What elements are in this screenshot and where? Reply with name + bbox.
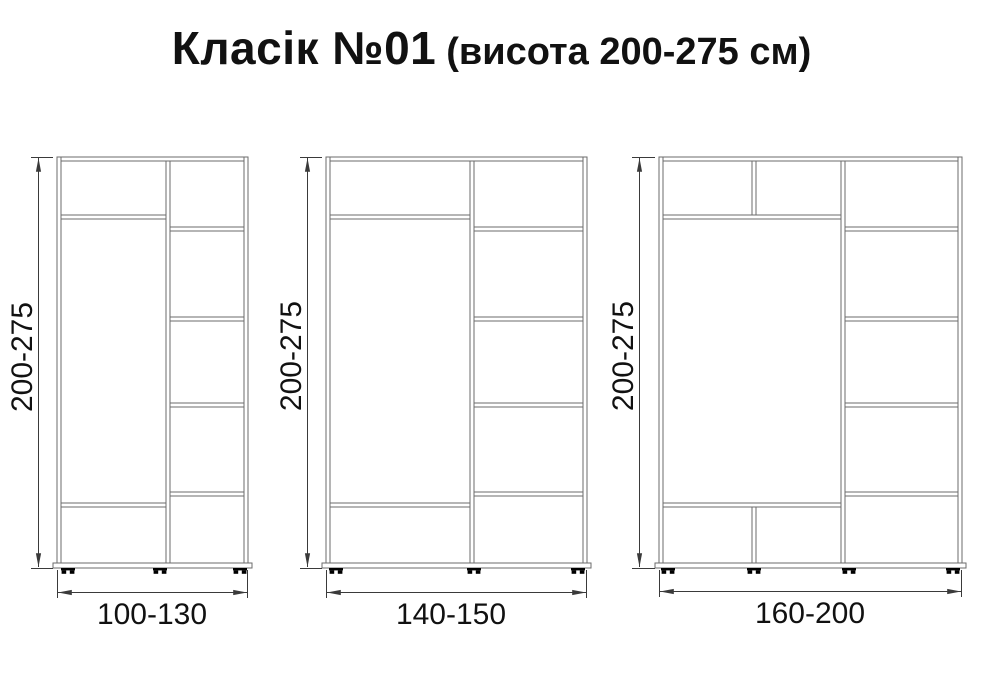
width-dimension: 160-200 xyxy=(660,570,962,630)
bottom-shelf xyxy=(663,503,841,507)
height-dimension-label: 200-275 xyxy=(607,301,640,411)
top-shelf xyxy=(61,215,166,219)
wardrobe-medium: 200-275 140-150 xyxy=(275,157,591,631)
shelf xyxy=(170,227,244,231)
right-side-panel xyxy=(244,157,248,563)
shelf xyxy=(474,492,583,496)
furniture-dimension-diagram: Класік №01(висота 200-275 см) xyxy=(0,0,983,700)
shelf xyxy=(474,227,583,231)
width-dimension-label: 100-130 xyxy=(97,598,207,631)
top-panel xyxy=(326,157,587,161)
left-side-panel xyxy=(659,157,663,563)
width-dimension: 100-130 xyxy=(58,570,248,631)
base-panel xyxy=(322,563,591,568)
wardrobe-small-body xyxy=(53,157,252,568)
bottom-shelf xyxy=(330,503,470,507)
height-dimension: 200-275 xyxy=(607,158,655,569)
adjustable-foot xyxy=(842,568,856,574)
shelf xyxy=(474,403,583,407)
wardrobe-medium-feet xyxy=(329,568,585,574)
adjustable-foot xyxy=(233,568,247,574)
height-dimension: 200-275 xyxy=(275,158,322,569)
base-panel xyxy=(655,563,966,568)
adjustable-foot xyxy=(747,568,761,574)
shelf xyxy=(170,492,244,496)
wardrobe-diagram: 200-275 100-130 xyxy=(0,0,983,700)
shelf xyxy=(845,227,958,231)
center-divider xyxy=(166,161,170,563)
shelf xyxy=(845,317,958,321)
top-panel xyxy=(659,157,962,161)
wardrobe-large-feet xyxy=(661,568,960,574)
wardrobe-medium-body xyxy=(322,157,591,568)
height-dimension-label: 200-275 xyxy=(6,302,39,412)
shelf xyxy=(845,492,958,496)
shelf xyxy=(170,317,244,321)
wardrobe-small-feet xyxy=(61,568,247,574)
lower-compartment-divider xyxy=(752,507,756,563)
base-panel xyxy=(53,563,252,568)
adjustable-foot xyxy=(661,568,675,574)
adjustable-foot xyxy=(946,568,960,574)
bottom-shelf xyxy=(61,503,166,507)
wardrobe-large-body xyxy=(655,157,966,568)
right-side-panel xyxy=(583,157,587,563)
top-panel xyxy=(57,157,248,161)
left-side-panel xyxy=(326,157,330,563)
width-dimension: 140-150 xyxy=(327,570,587,631)
wardrobe-small: 200-275 100-130 xyxy=(6,157,252,631)
shelf xyxy=(845,403,958,407)
adjustable-foot xyxy=(571,568,585,574)
top-shelf xyxy=(330,215,470,219)
shelf xyxy=(170,403,244,407)
width-dimension-label: 160-200 xyxy=(755,597,865,630)
height-dimension: 200-275 xyxy=(6,158,53,569)
adjustable-foot xyxy=(467,568,481,574)
center-divider xyxy=(841,161,845,563)
left-side-panel xyxy=(57,157,61,563)
adjustable-foot xyxy=(61,568,75,574)
width-dimension-label: 140-150 xyxy=(396,598,506,631)
height-dimension-label: 200-275 xyxy=(275,301,308,411)
adjustable-foot xyxy=(329,568,343,574)
right-side-panel xyxy=(958,157,962,563)
center-divider xyxy=(470,161,474,563)
wardrobe-large: 200-275 160-200 xyxy=(607,157,966,630)
upper-compartment-divider xyxy=(752,161,756,215)
top-shelf xyxy=(663,215,841,219)
shelf xyxy=(474,317,583,321)
adjustable-foot xyxy=(153,568,167,574)
